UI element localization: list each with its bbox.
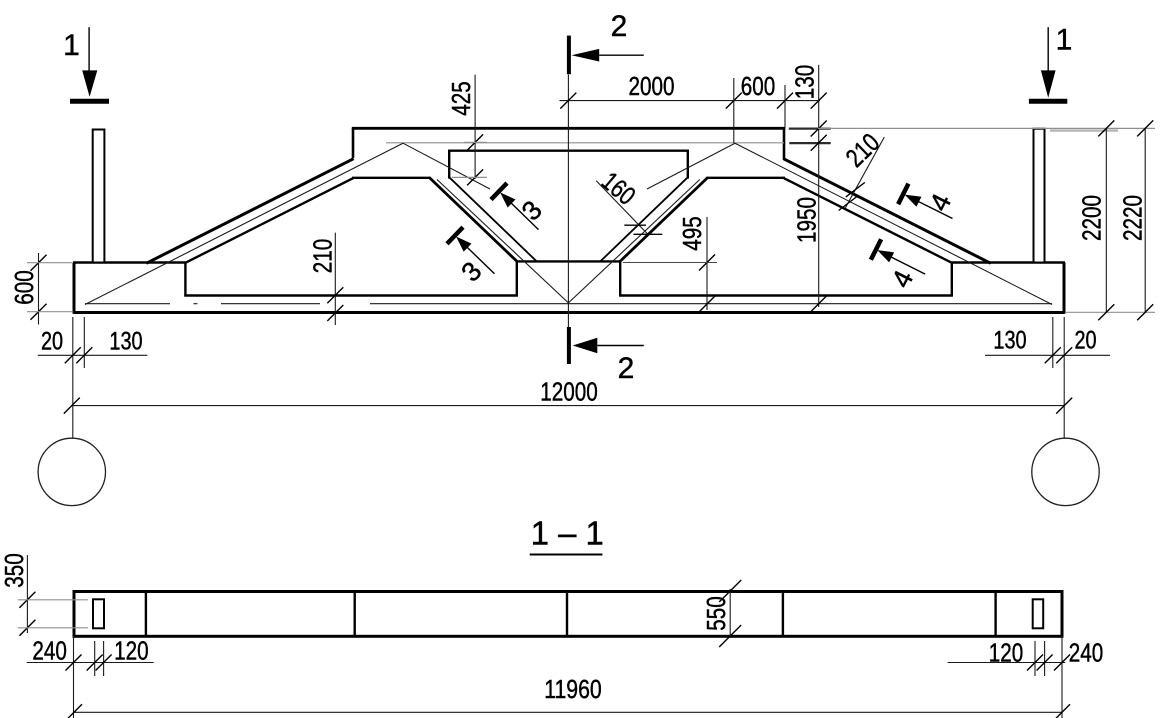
- svg-text:130: 130: [993, 327, 1026, 355]
- svg-text:600: 600: [741, 71, 776, 101]
- svg-text:495: 495: [677, 216, 707, 251]
- svg-text:12000: 12000: [540, 377, 598, 407]
- svg-text:2000: 2000: [629, 71, 675, 101]
- svg-text:2220: 2220: [1118, 195, 1148, 241]
- svg-text:120: 120: [989, 638, 1024, 668]
- svg-text:210: 210: [308, 239, 338, 274]
- svg-text:20: 20: [41, 328, 63, 356]
- svg-text:130: 130: [790, 65, 820, 100]
- svg-text:2: 2: [611, 10, 628, 43]
- svg-text:550: 550: [701, 596, 731, 631]
- svg-text:600: 600: [9, 270, 39, 305]
- svg-text:2: 2: [618, 352, 635, 385]
- svg-text:240: 240: [1069, 638, 1104, 668]
- svg-text:1950: 1950: [792, 197, 822, 243]
- svg-text:120: 120: [114, 636, 149, 666]
- svg-text:11960: 11960: [544, 674, 602, 704]
- svg-text:130: 130: [109, 328, 142, 356]
- svg-text:1: 1: [63, 29, 80, 62]
- svg-text:2200: 2200: [1077, 195, 1107, 241]
- svg-text:20: 20: [1074, 327, 1096, 355]
- svg-text:350: 350: [0, 553, 29, 588]
- svg-text:425: 425: [446, 81, 476, 116]
- svg-text:240: 240: [32, 636, 67, 666]
- svg-text:1 – 1: 1 – 1: [531, 515, 604, 552]
- svg-text:1: 1: [1056, 24, 1073, 57]
